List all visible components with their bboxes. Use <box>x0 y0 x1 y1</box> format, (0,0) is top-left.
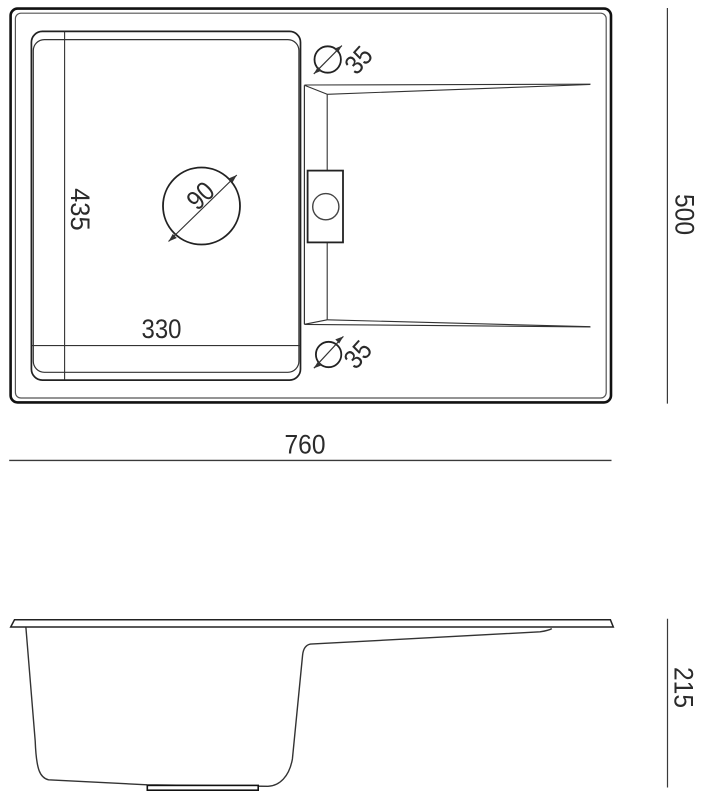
svg-text:760: 760 <box>285 429 326 459</box>
svg-text:500: 500 <box>670 194 700 235</box>
svg-text:330: 330 <box>142 314 182 344</box>
svg-text:435: 435 <box>65 188 95 231</box>
svg-text:215: 215 <box>669 667 699 708</box>
